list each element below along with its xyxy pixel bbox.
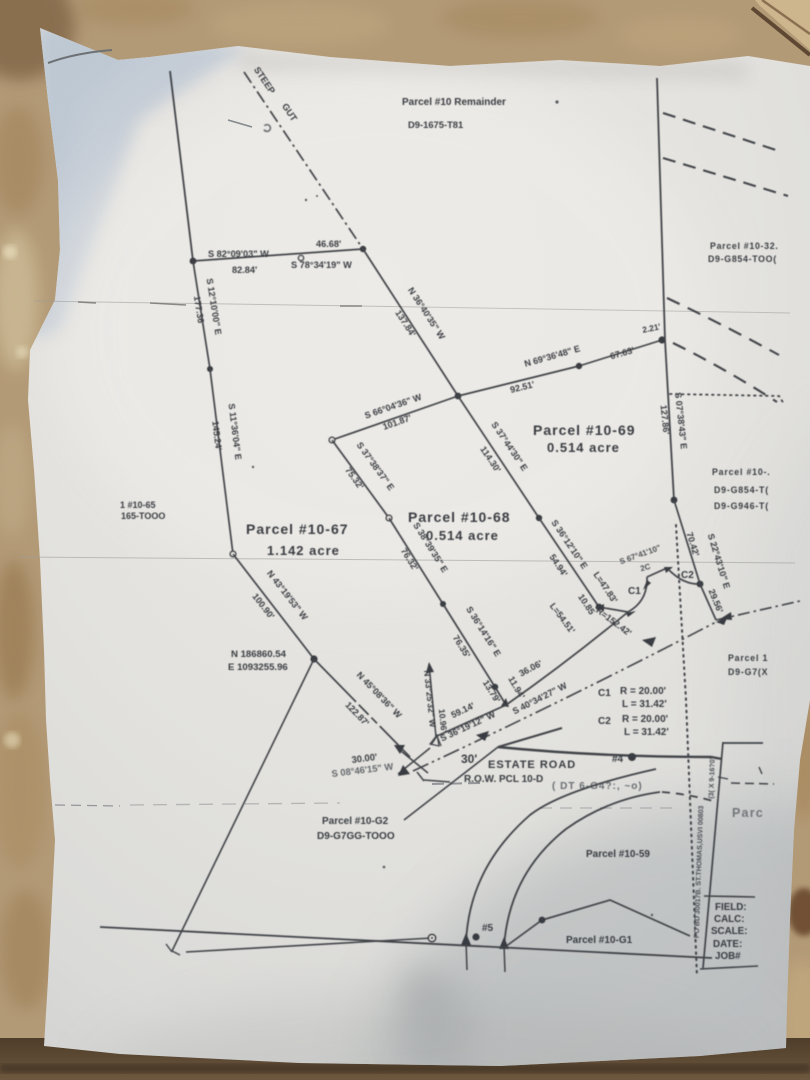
svg-text:R.O.W. PCL 10-D: R.O.W. PCL 10-D <box>464 774 543 785</box>
svg-text:Parcel #10-G1: Parcel #10-G1 <box>566 935 633 946</box>
svg-text:#5: #5 <box>482 923 494 934</box>
svg-text:Parcel #10 Remainder: Parcel #10 Remainder <box>402 97 506 108</box>
svg-text:FIELD:: FIELD: <box>715 902 747 913</box>
svg-text:D9-G7GG-TOOO: D9-G7GG-TOOO <box>317 831 395 842</box>
svg-text:N 186860.54: N 186860.54 <box>231 649 287 660</box>
svg-text:82.84': 82.84' <box>232 265 257 275</box>
svg-text:L = 31.42': L = 31.42' <box>622 699 667 710</box>
svg-text:C2: C2 <box>598 716 611 727</box>
svg-text:D9-G946-T(: D9-G946-T( <box>714 501 769 511</box>
svg-text:1 #10-65: 1 #10-65 <box>120 500 156 510</box>
svg-text:Parcel #10-59: Parcel #10-59 <box>586 849 650 860</box>
svg-text:(3( X 9-16?0): (3( X 9-16?0) <box>708 757 716 799</box>
svg-text:165-TOOO: 165-TOOO <box>121 511 165 521</box>
svg-text:C2: C2 <box>681 570 694 581</box>
svg-text:1.142 acre: 1.142 acre <box>267 543 340 558</box>
svg-text:CALC:: CALC: <box>714 914 744 925</box>
svg-text:Parc: Parc <box>732 806 764 820</box>
svg-text:D9-1675-T81: D9-1675-T81 <box>408 119 463 130</box>
svg-text:D9-G854-T(: D9-G854-T( <box>714 485 769 495</box>
svg-text:ESTATE ROAD: ESTATE ROAD <box>488 759 576 771</box>
svg-text:Parcel 1: Parcel 1 <box>728 653 768 663</box>
svg-text:SCALE:: SCALE: <box>711 926 747 937</box>
svg-text:0.514 acre: 0.514 acre <box>547 440 620 455</box>
svg-text:Parcel #10-67: Parcel #10-67 <box>246 521 349 537</box>
svg-text:#4: #4 <box>612 754 624 765</box>
svg-text:( DT 6-G4?:, ~o): ( DT 6-G4?:, ~o) <box>552 781 643 792</box>
svg-text:C1: C1 <box>598 688 611 699</box>
svg-text:Parcel #10-68: Parcel #10-68 <box>408 509 511 525</box>
svg-text:Parcel #10-.: Parcel #10-. <box>712 467 771 477</box>
svg-text:Parcel #10-G2: Parcel #10-G2 <box>322 816 389 827</box>
svg-text:JOB#: JOB# <box>715 951 741 962</box>
svg-text:D9-G7(X: D9-G7(X <box>728 667 768 677</box>
svg-text:0.514 acre: 0.514 acre <box>426 528 499 543</box>
svg-text:C1: C1 <box>628 586 641 597</box>
svg-text:R = 20.00': R = 20.00' <box>620 686 666 697</box>
svg-text:Parcel #10-32.: Parcel #10-32. <box>710 241 779 251</box>
svg-text:S 78°34'19" W: S 78°34'19" W <box>291 260 352 270</box>
svg-text:E 1093255.96: E 1093255.96 <box>228 662 288 673</box>
svg-text:L = 31.42': L = 31.42' <box>624 727 669 738</box>
svg-text:D9-G854-TOO(: D9-G854-TOO( <box>708 254 777 264</box>
svg-text:30': 30' <box>461 752 477 766</box>
svg-text:Parcel #10-69: Parcel #10-69 <box>533 422 636 438</box>
svg-text:R = 20.00': R = 20.00' <box>622 714 668 725</box>
svg-text:46.68': 46.68' <box>316 239 341 249</box>
svg-text:S 82°09'03" W: S 82°09'03" W <box>208 249 269 259</box>
svg-text:DATE:: DATE: <box>713 939 742 950</box>
